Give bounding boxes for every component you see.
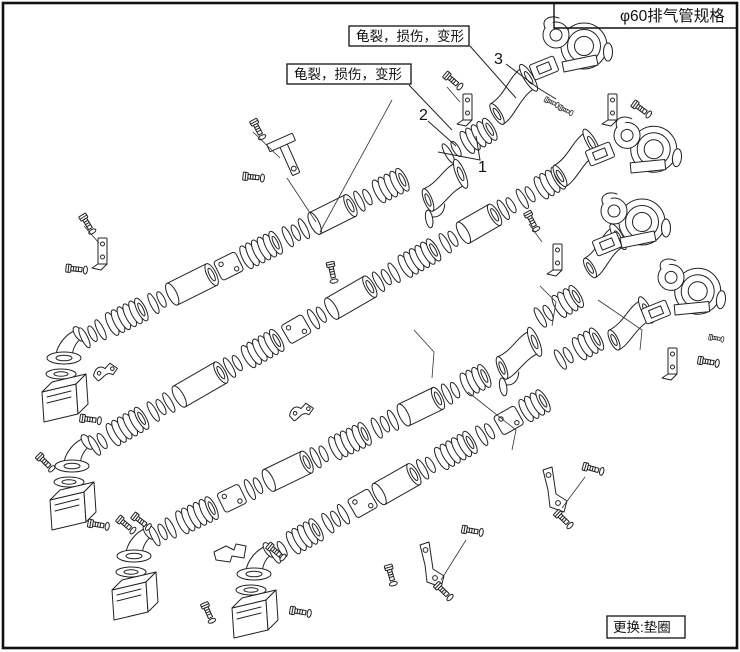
flange-bore [246,571,262,577]
gasket-bore [244,588,258,592]
bracket-foot [457,120,472,126]
bracket-hole [671,352,675,356]
flange-bore [56,355,72,361]
inlet-elbow-mount [50,433,96,530]
bracket [543,467,567,512]
outlet [604,43,613,61]
bracket-hole [556,501,561,506]
exploded-parts-diagram: φ60排气管规格 龟裂，损伤，变形 龟裂，损伤，变形 3 2 1 更换:垫圈 [0,0,740,652]
bracket-body [91,362,119,382]
exhaust-parts-diagram-page: φ60排气管规格 龟裂，损伤，变形 龟裂，损伤，变形 3 2 1 更换:垫圈 [0,0,740,652]
clamp-block [493,405,524,435]
washer [97,416,102,424]
callout-top-label: 龟裂，损伤，变形 [356,29,464,44]
washer [715,359,720,368]
zone-line [287,178,316,222]
gasket-plate [529,56,559,81]
bolt-shaft [40,457,51,468]
elbow-pipe [598,295,660,352]
bolt [79,213,97,235]
bracket-hole [101,255,105,259]
flange-bore [64,463,80,469]
zone-line [441,540,466,580]
bracket-hole [556,248,560,252]
gasket-bore [62,480,76,484]
bracket [214,544,246,562]
clamp-block [213,251,244,280]
footer-note: 更换:垫圈 [607,616,685,638]
pipe-assembly [76,167,412,351]
washer [721,336,725,342]
bracket-foot [602,120,617,126]
outlet [662,219,671,237]
bracket-hole [110,366,114,370]
housing-rib [633,213,652,232]
bracket-foot [547,270,562,276]
bolt [697,356,720,368]
bolt [200,601,216,624]
clamp-block [217,484,248,513]
bracket [662,348,677,380]
housing-rib [575,37,594,56]
bolt [66,264,88,274]
bolt-shaft [558,514,569,525]
bracket-hole [293,411,297,415]
bracket-body [214,544,246,562]
bolt-shaft [547,99,555,105]
zone-line [84,226,99,243]
bracket-foot [662,374,677,380]
bracket-hole [611,98,615,102]
bracket-foot [92,264,107,270]
bracket [420,542,444,587]
bolt [79,414,101,425]
bracket-stem [280,143,300,175]
bracket-hole [466,111,470,115]
elbow-pipe [481,326,553,398]
part-2-leader [428,121,456,146]
zone-line [529,224,542,242]
branch-opening [424,209,434,228]
bolt [243,172,265,182]
bracket-hole [556,261,560,265]
washer [389,581,398,587]
bracket [92,238,107,270]
bracket [267,133,308,180]
washer [479,528,484,537]
inlet-elbow-mount [42,325,88,422]
callout-top-leader [470,46,516,98]
part-3-label: 3 [494,51,503,68]
bolt [523,210,540,233]
bolt [442,71,464,91]
bolt [384,564,398,587]
part-number-2: 2 [419,107,456,146]
washer [330,278,339,284]
washer [307,609,312,618]
bracket-hole [433,576,438,581]
branch-opening [498,377,508,396]
bolt-shaft [438,586,449,597]
bracket-hole [97,371,101,375]
bracket-hole [466,98,470,102]
diagram-line-art [35,17,729,638]
part-2-label: 2 [419,107,428,124]
washer [83,266,88,274]
bolt [582,462,605,476]
bracket-hole [611,111,615,115]
bolt [544,96,560,108]
flange-bore [126,553,142,559]
turbine-inlet [550,29,562,41]
bolt [461,525,484,537]
bolt [558,104,574,116]
clamp-block [281,314,312,344]
bracket-body [287,402,315,422]
bolt [87,519,110,531]
washer [105,522,110,531]
bolt [433,581,454,602]
bolt [709,334,725,342]
zone-line [562,477,585,508]
pipe-assembly [551,326,606,372]
pipe-assembly [531,284,586,330]
bracket [91,362,119,382]
washer [260,174,265,182]
turbine-inlet [608,205,620,217]
zone-line [414,330,434,378]
bracket [547,244,562,276]
bracket-hole [101,242,105,246]
part-1-label: 1 [478,159,487,176]
bolt-shaft [561,107,569,113]
bolt [289,606,312,618]
gasket-bore [54,372,68,376]
footer-note-label: 更换:垫圈 [613,620,671,635]
bracket-hole [306,406,310,410]
bracket-hole [546,473,551,478]
bolt [631,100,653,119]
callout-bottom-label: 龟裂，损伤，变形 [294,67,402,82]
bracket [602,94,617,126]
turbocharger [610,116,685,178]
bracket-hole [423,548,428,553]
gasket-bore [124,570,138,574]
gasket-plate [592,232,622,257]
bracket [287,402,315,422]
washer [599,467,605,476]
bolt [249,118,266,141]
bracket [457,94,472,126]
bolt [326,261,338,284]
bolt [35,452,56,473]
inlet-elbow-mount [112,523,158,620]
elbow-pipe [407,158,479,230]
bracket-hole [671,365,675,369]
spec-title: φ60排气管规格 [620,7,725,25]
callout-top: 龟裂，损伤，变形 [349,26,516,98]
